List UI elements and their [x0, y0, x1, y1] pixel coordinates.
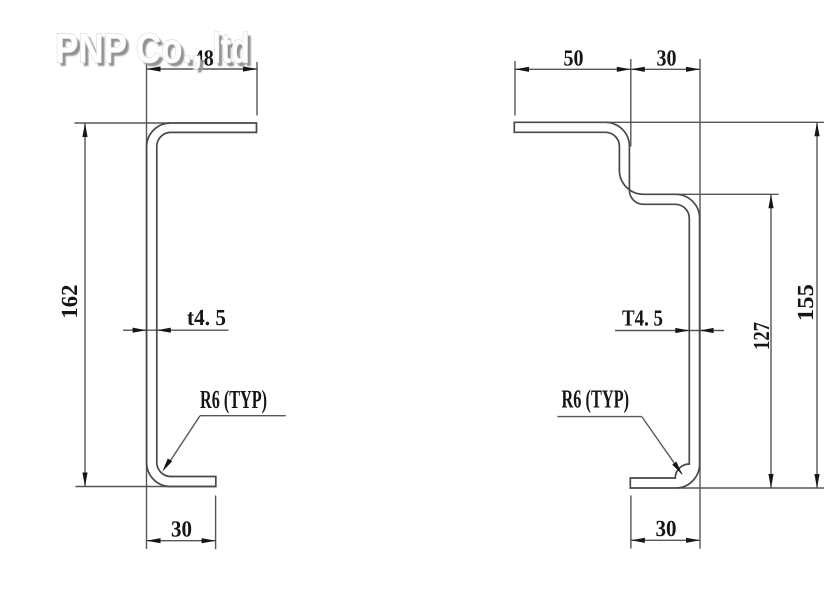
svg-text:,: ,	[191, 25, 203, 72]
svg-text:30: 30	[656, 516, 677, 541]
svg-text:50: 50	[564, 46, 584, 71]
svg-text:R6 (TYP): R6 (TYP)	[562, 385, 630, 414]
svg-text:155: 155	[793, 284, 818, 321]
svg-text:162: 162	[57, 285, 82, 319]
svg-text:30: 30	[657, 46, 677, 71]
svg-text:PNP Co.: PNP Co.	[55, 25, 192, 72]
svg-text:127: 127	[749, 322, 774, 350]
svg-text:R6 (TYP): R6 (TYP)	[200, 385, 267, 414]
svg-text:30: 30	[171, 516, 192, 541]
svg-text:T4. 5: T4. 5	[622, 305, 663, 330]
svg-text:ltd: ltd	[213, 25, 250, 72]
svg-text:t4. 5: t4. 5	[187, 305, 226, 330]
